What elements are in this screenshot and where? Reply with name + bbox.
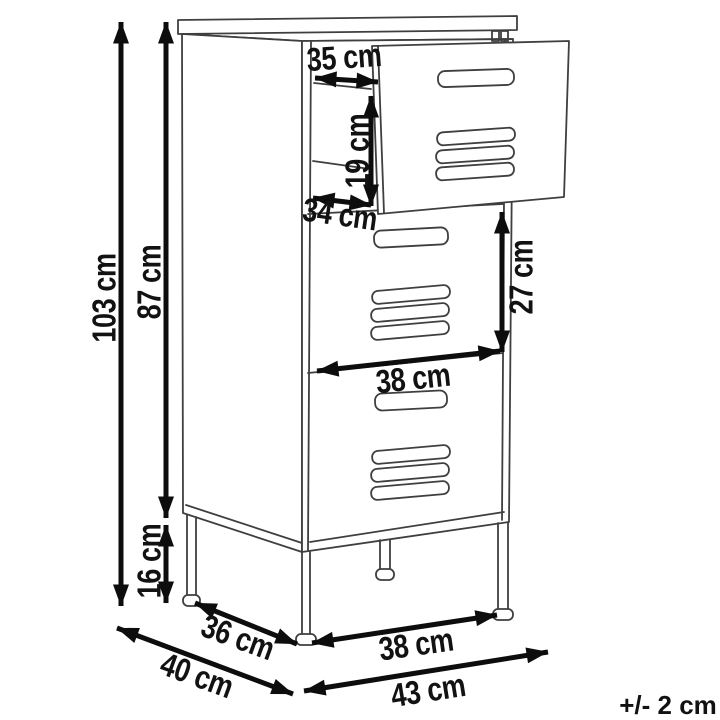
dim-label-opening-width: 35 cm (306, 38, 383, 76)
cabinet-side-panel (182, 34, 302, 552)
leg-foot (376, 569, 394, 580)
dimension-diagram-canvas: 103 cm 87 cm 16 cm 35 cm 19 cm 34 cm 27 … (0, 0, 720, 720)
dim-label-body-height: 87 cm (133, 245, 166, 320)
dim-label-door-width: 38 cm (374, 358, 452, 399)
tolerance-note: +/- 2 cm (619, 692, 717, 718)
open-door (372, 41, 569, 214)
dim-label-opening-height: 19 cm (341, 114, 374, 189)
dim-label-total-height: 103 cm (88, 253, 121, 342)
cabinet-line-drawing (0, 0, 720, 720)
dim-label-door-height: 27 cm (505, 240, 538, 315)
dim-label-leg-height: 16 cm (133, 524, 166, 599)
